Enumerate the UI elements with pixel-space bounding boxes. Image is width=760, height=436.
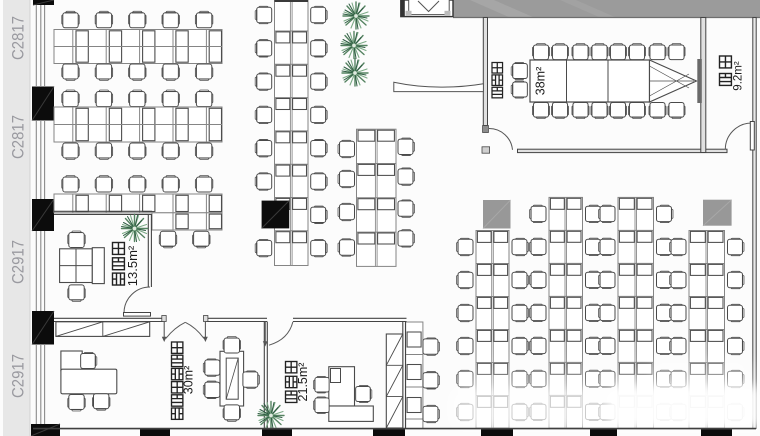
svg-text:21.5m²: 21.5m² bbox=[296, 363, 310, 402]
svg-text:C2817: C2817 bbox=[10, 16, 28, 60]
svg-text:C2817: C2817 bbox=[10, 115, 28, 159]
svg-text:38m²: 38m² bbox=[534, 67, 548, 95]
svg-text:13.5m²: 13.5m² bbox=[125, 245, 140, 286]
svg-text:9.2m²: 9.2m² bbox=[733, 61, 745, 91]
svg-text:C2917: C2917 bbox=[10, 240, 28, 284]
svg-text:30m²: 30m² bbox=[182, 366, 196, 394]
svg-text:C2917: C2917 bbox=[10, 354, 28, 398]
